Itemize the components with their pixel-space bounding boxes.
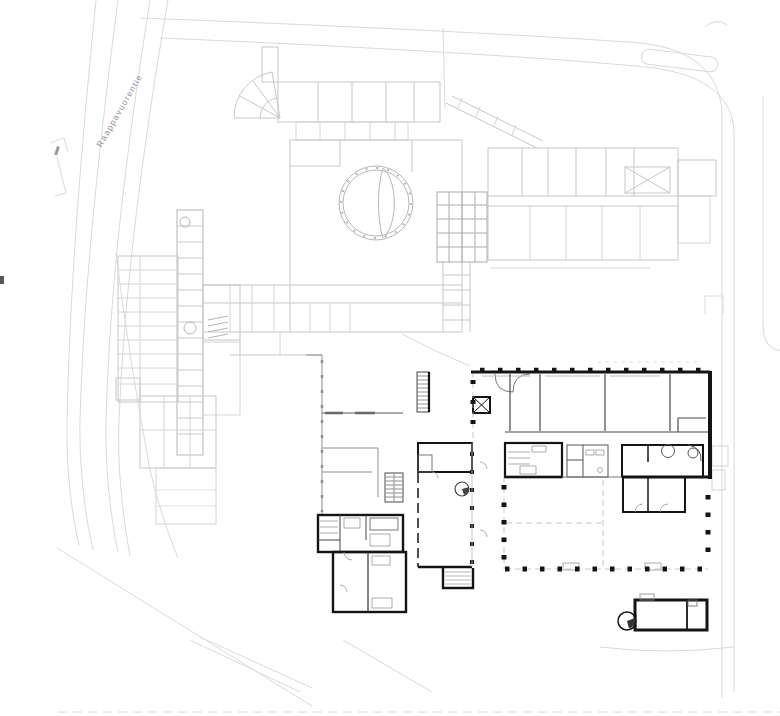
corridor-lines: [488, 196, 678, 206]
fan-terrace: [234, 72, 280, 118]
bay-walls: [443, 568, 473, 588]
road-diagonal: [200, 637, 312, 688]
upper-room: [418, 443, 472, 472]
annex-partitions: [118, 256, 178, 402]
exterior-stub: [712, 446, 728, 466]
road-line: [119, 0, 168, 556]
door-arc: [635, 504, 668, 512]
round-hall-ticks: [341, 168, 411, 238]
existing-top-wing: [234, 47, 440, 140]
shelving: [320, 521, 338, 533]
fixture: [586, 450, 594, 455]
annex: [678, 196, 710, 243]
stair-stub: [262, 47, 278, 82]
road-line: [67, 0, 96, 545]
room-block-outline: [333, 552, 406, 612]
new-stair-tower: [417, 372, 429, 412]
survey-tick: [0, 276, 4, 284]
existing-buildings: [116, 47, 716, 558]
annex-partitions: [156, 490, 216, 506]
fixture: [370, 534, 390, 546]
band-lines: [203, 285, 322, 355]
road-line: [140, 18, 722, 698]
partitions: [310, 303, 350, 332]
wc-rooms: [567, 445, 608, 477]
gym-roof-brace: [625, 167, 670, 193]
exterior-stub: [712, 470, 725, 490]
stair-hatch: [208, 316, 228, 338]
new-service-rooms: [318, 515, 406, 612]
new-building: [318, 370, 728, 630]
stair-treads: [385, 473, 403, 502]
small-room: [418, 455, 432, 472]
new-central-hall: [418, 443, 472, 567]
fixture: [370, 518, 398, 530]
round-hall-outer: [339, 166, 413, 240]
spiral-stair-icon: [688, 448, 698, 458]
survey-tick: [54, 146, 60, 155]
room-outline: [622, 445, 703, 477]
retaining-curve: [116, 253, 178, 558]
new-entry-steps: [443, 568, 473, 588]
room-partitions: [320, 122, 395, 140]
room-partitions: [522, 148, 634, 196]
annex-partitions: [140, 396, 216, 468]
fixture: [344, 518, 360, 528]
site-plan-canvas: Raappavuorentie: [0, 0, 780, 716]
shelving: [508, 452, 530, 464]
room-partitions: [318, 82, 414, 122]
road-line: [80, 0, 118, 550]
boundary-wall: [306, 355, 322, 515]
wing-outline: [278, 82, 440, 122]
cluster-grid: [437, 192, 487, 262]
wing-outline: [488, 148, 678, 260]
partition: [567, 445, 583, 477]
road-diagonal: [57, 548, 312, 706]
yard-stair: [385, 473, 403, 502]
path-curve: [600, 647, 734, 651]
annex-outline: [140, 396, 216, 468]
existing-west-annexes: [116, 253, 216, 558]
road-curve: [705, 21, 727, 27]
room-block-outline: [318, 515, 403, 552]
existing-connector-band: [203, 285, 470, 366]
road-diagonal: [190, 640, 300, 692]
fixture: [372, 556, 390, 565]
pavilion-outline: [635, 600, 707, 630]
annex-outline: [116, 378, 140, 400]
partitions: [290, 140, 462, 303]
fixture: [520, 466, 536, 474]
street-label: Raappavuorentie: [94, 72, 144, 149]
path-line: [443, 28, 445, 108]
stair-treads: [417, 376, 429, 408]
door-arc: [340, 552, 352, 592]
curved-wall: [688, 445, 701, 461]
annex-outline: [156, 468, 216, 524]
new-detached-pavilion: [618, 594, 707, 630]
road-line: [106, 0, 150, 552]
annex: [203, 342, 240, 415]
entry-door-arcs: [495, 374, 530, 392]
new-elevator-entry: [473, 374, 530, 413]
curb-corner: [705, 296, 723, 314]
room-outline: [623, 477, 685, 512]
partitions: [505, 374, 710, 432]
step-treads: [445, 572, 471, 584]
annex: [678, 160, 716, 196]
yard-partitions: [322, 448, 378, 497]
room-row: [296, 122, 408, 140]
fixture: [596, 450, 604, 455]
road-curve: [763, 96, 780, 351]
grid-dashed: [473, 372, 708, 569]
round-hall-inner: [343, 170, 409, 236]
existing-central-block: [290, 140, 462, 332]
new-main-hall: [471, 370, 728, 570]
road-diagonal: [343, 640, 432, 692]
round-table: [662, 445, 675, 458]
elevator-x: [473, 397, 490, 413]
fixture: [372, 598, 392, 608]
fixture: [532, 446, 546, 452]
brace-x: [625, 167, 670, 193]
round-hall-wedge: [379, 168, 395, 238]
architectural-site-plan: Raappavuorentie: [0, 0, 780, 716]
room-outline: [505, 443, 562, 477]
annex-outline: [118, 256, 178, 402]
spiral-stair-icon: [184, 322, 196, 334]
corridor-lines: [443, 262, 470, 332]
room-partition: [318, 515, 366, 552]
spiral-stair-icon: [462, 487, 469, 495]
existing-east-wing: [488, 148, 716, 268]
path-curve: [402, 334, 470, 366]
fixture: [598, 468, 603, 473]
band-partitions: [230, 285, 280, 355]
door-arc: [480, 462, 487, 537]
existing-yard-walls: [306, 355, 403, 515]
room-partitions: [530, 206, 640, 260]
